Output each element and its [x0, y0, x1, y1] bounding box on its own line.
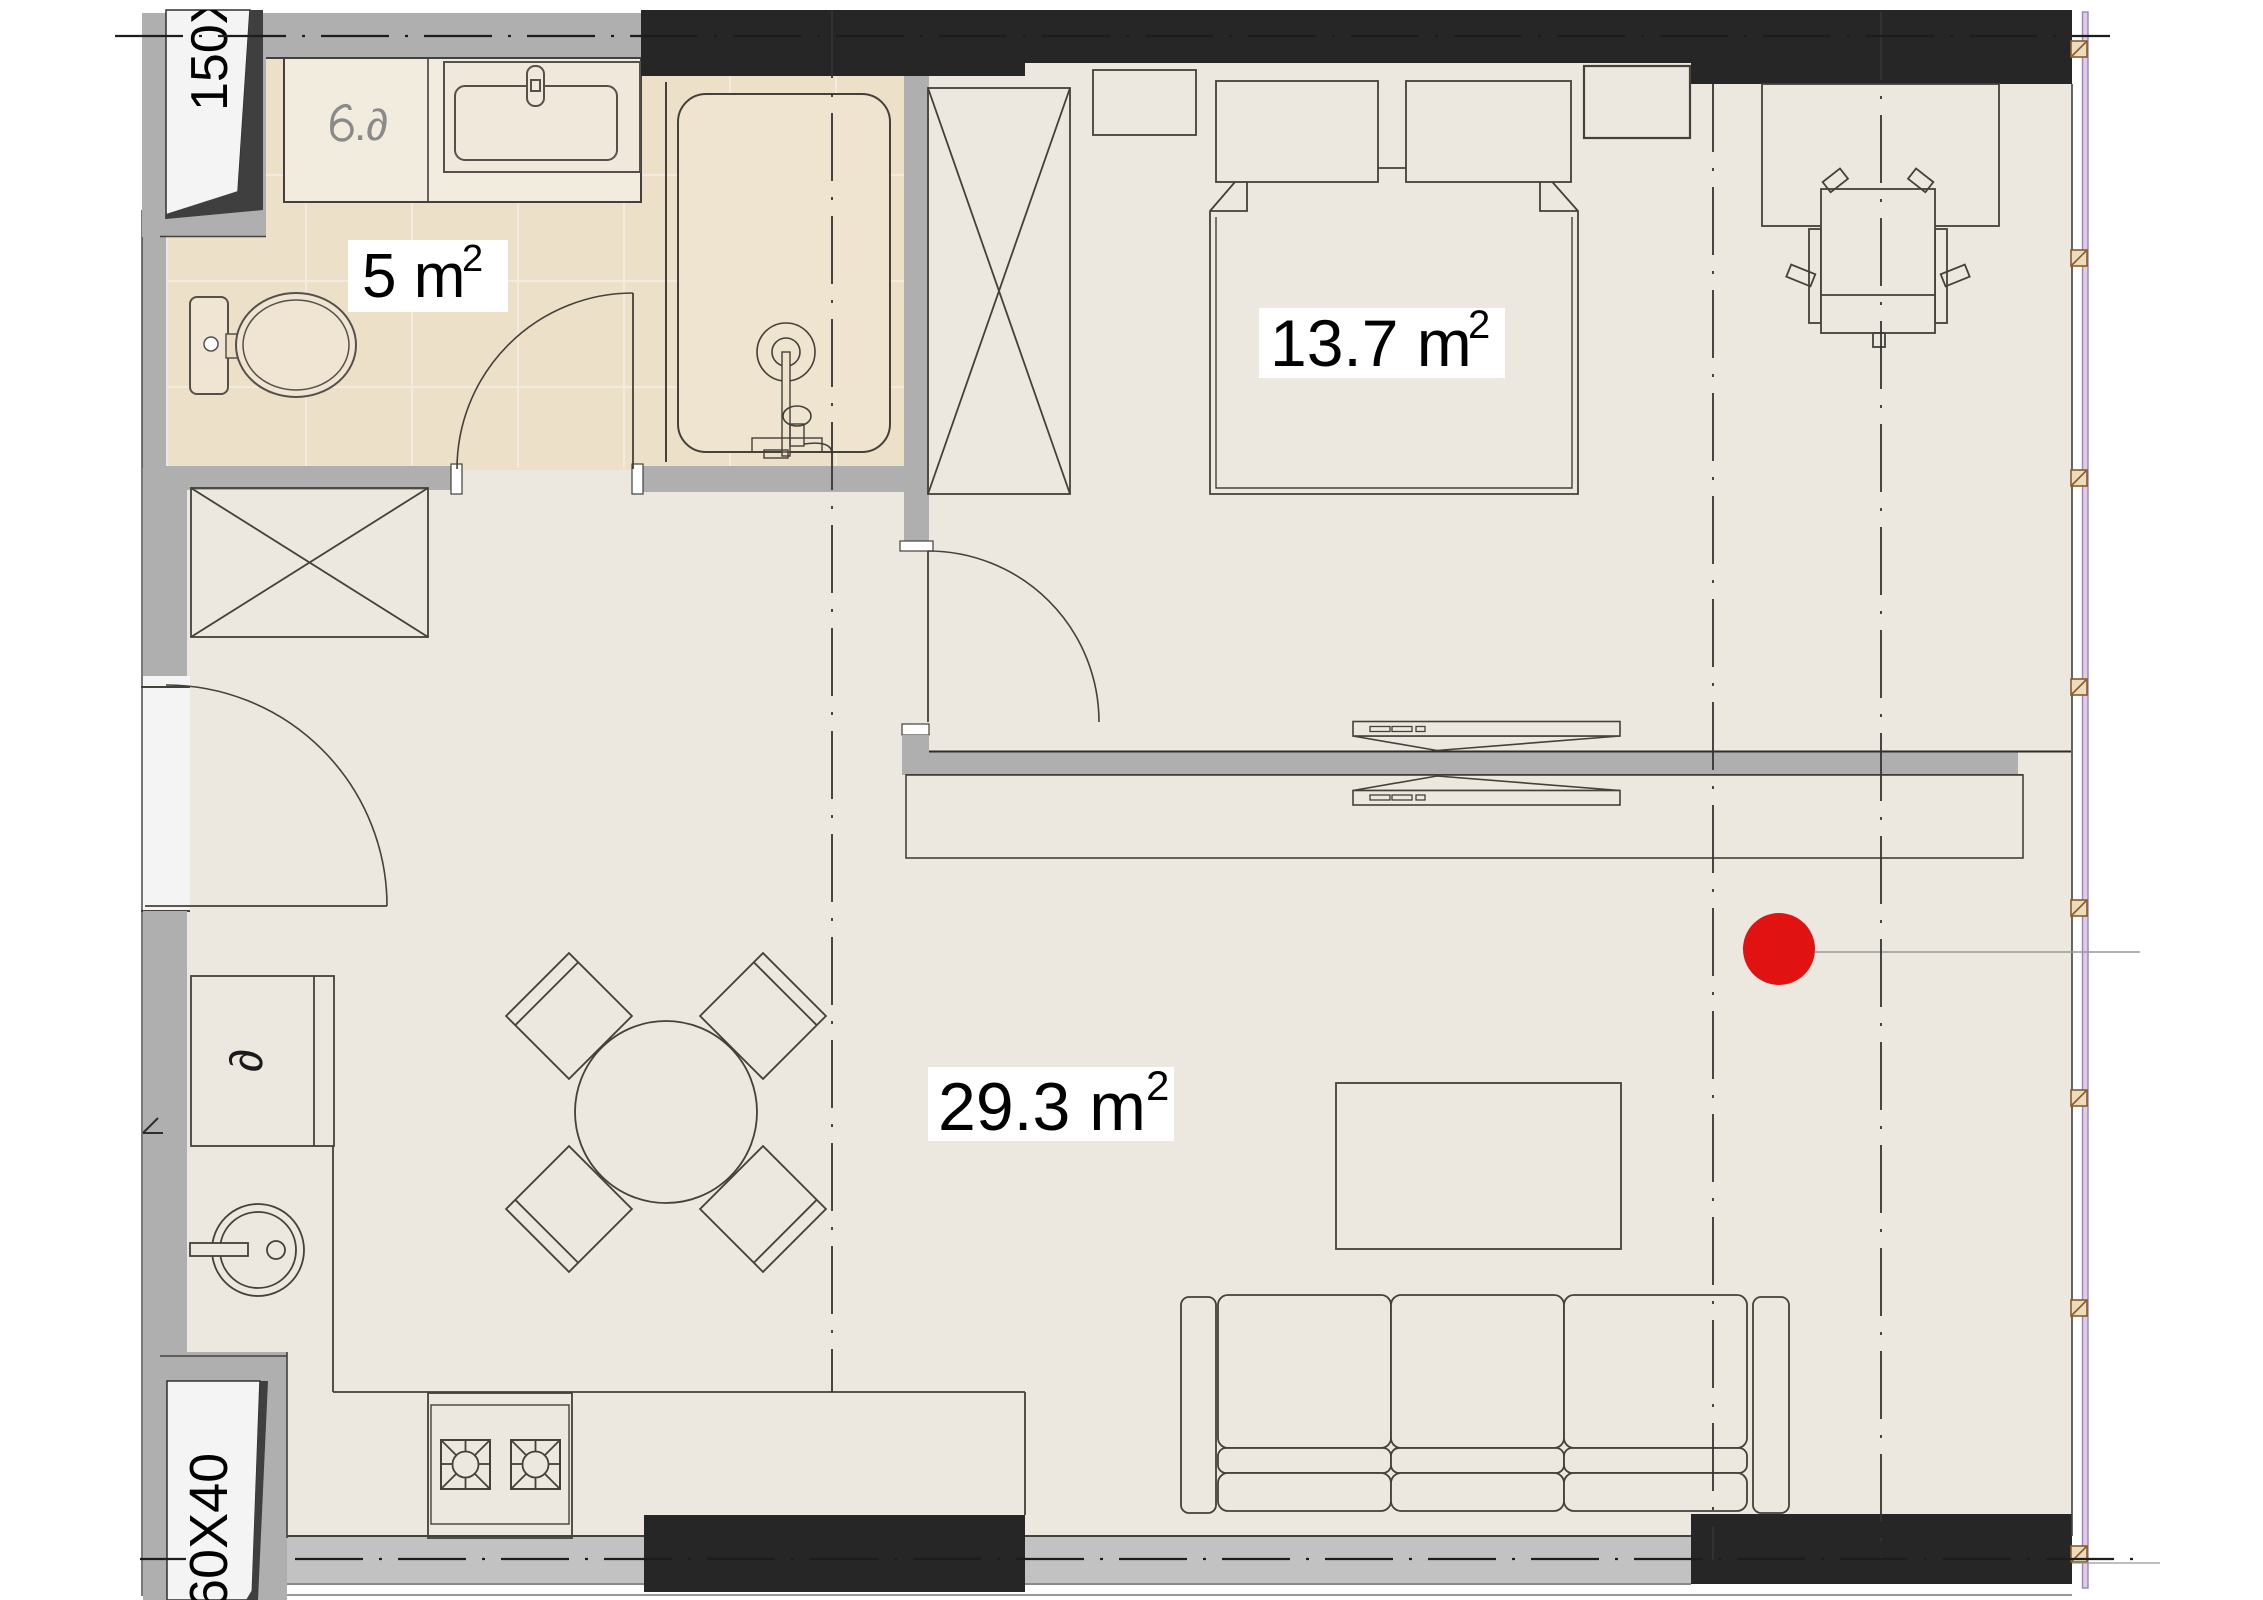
svg-text:.∂: .∂: [354, 101, 388, 150]
svg-text:2: 2: [462, 238, 483, 280]
svg-text:13.7 m: 13.7 m: [1270, 306, 1472, 380]
svg-text:60X40: 60X40: [179, 1453, 239, 1600]
svg-text:5 m: 5 m: [362, 242, 465, 311]
svg-text:2: 2: [1468, 303, 1490, 347]
svg-text:2: 2: [1146, 1062, 1169, 1109]
svg-text:∂: ∂: [220, 1049, 272, 1072]
svg-text:150X40: 150X40: [181, 0, 239, 111]
svg-text:29.3 m: 29.3 m: [938, 1069, 1146, 1145]
